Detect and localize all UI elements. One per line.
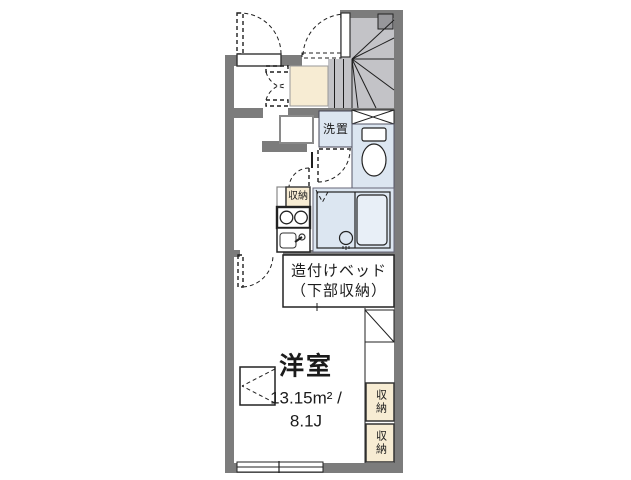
- room-door: [238, 255, 273, 287]
- bathroom: [313, 188, 394, 252]
- corridor-door-swing-arc: [289, 168, 309, 188]
- wall-right: [394, 10, 403, 473]
- toilet-window: [352, 110, 394, 124]
- double-door-arc-bottom: [266, 84, 286, 100]
- wall-hall-divider-left: [225, 108, 263, 118]
- toilet-room: [352, 124, 394, 188]
- shoe-cabinet: [280, 116, 313, 143]
- entrance-storage-area: [290, 66, 328, 106]
- room-area-tatami-label: 8.1J: [290, 413, 322, 430]
- bottom-window: [237, 461, 323, 473]
- floorplan-drawing: [0, 0, 631, 480]
- entrance-door-swing-arc: [240, 13, 281, 54]
- stove-burner-left: [280, 211, 293, 224]
- double-door-bottom-leaf: [266, 100, 288, 106]
- entrance-door-open-leaf: [237, 13, 243, 54]
- double-door-arc-top: [266, 72, 286, 88]
- toilet-bowl: [362, 144, 386, 176]
- corridor-door: [289, 168, 309, 188]
- entrance-door-leaf: [237, 54, 281, 66]
- room-area-sqm-label: 13.15m² /: [270, 390, 342, 407]
- double-door-genkan: [266, 66, 288, 106]
- stairs-shaft-square: [378, 14, 393, 29]
- kitchen-storage-label: 収納: [288, 192, 308, 202]
- toilet-tank: [362, 128, 386, 141]
- bathtub: [357, 195, 387, 245]
- room-door-swing-arc: [243, 255, 273, 287]
- bed-label-line2: （下部収納）: [291, 284, 387, 299]
- washroom-door: [312, 150, 350, 182]
- bed-label-line1: 造付けベッド: [291, 264, 387, 279]
- stove-burner-right: [295, 211, 308, 224]
- sink-basin: [280, 233, 296, 248]
- room-door-leaf: [238, 255, 243, 287]
- stairs-door: [302, 13, 350, 58]
- room-name-label: 洋室: [279, 355, 333, 380]
- laundry-label: 洗置: [323, 123, 349, 135]
- stairs-door-swing-arc: [303, 14, 345, 55]
- floorplan-image: 洗置 収納 造付けベッド （下部収納） 洋室 13.15m² / 8.1J 収納…: [0, 0, 631, 480]
- washroom-door-swing-arc: [318, 150, 350, 182]
- double-door-top-leaf: [266, 66, 288, 72]
- entrance-door: [237, 13, 281, 66]
- closet-bottom-label: 収納: [375, 430, 386, 456]
- closet-top-label: 収納: [375, 389, 386, 415]
- stairs-door-leaf: [341, 13, 350, 57]
- staircase-area: [328, 17, 394, 110]
- stairs-door-threshold: [302, 53, 341, 58]
- kitchen-side-panel: [277, 187, 286, 207]
